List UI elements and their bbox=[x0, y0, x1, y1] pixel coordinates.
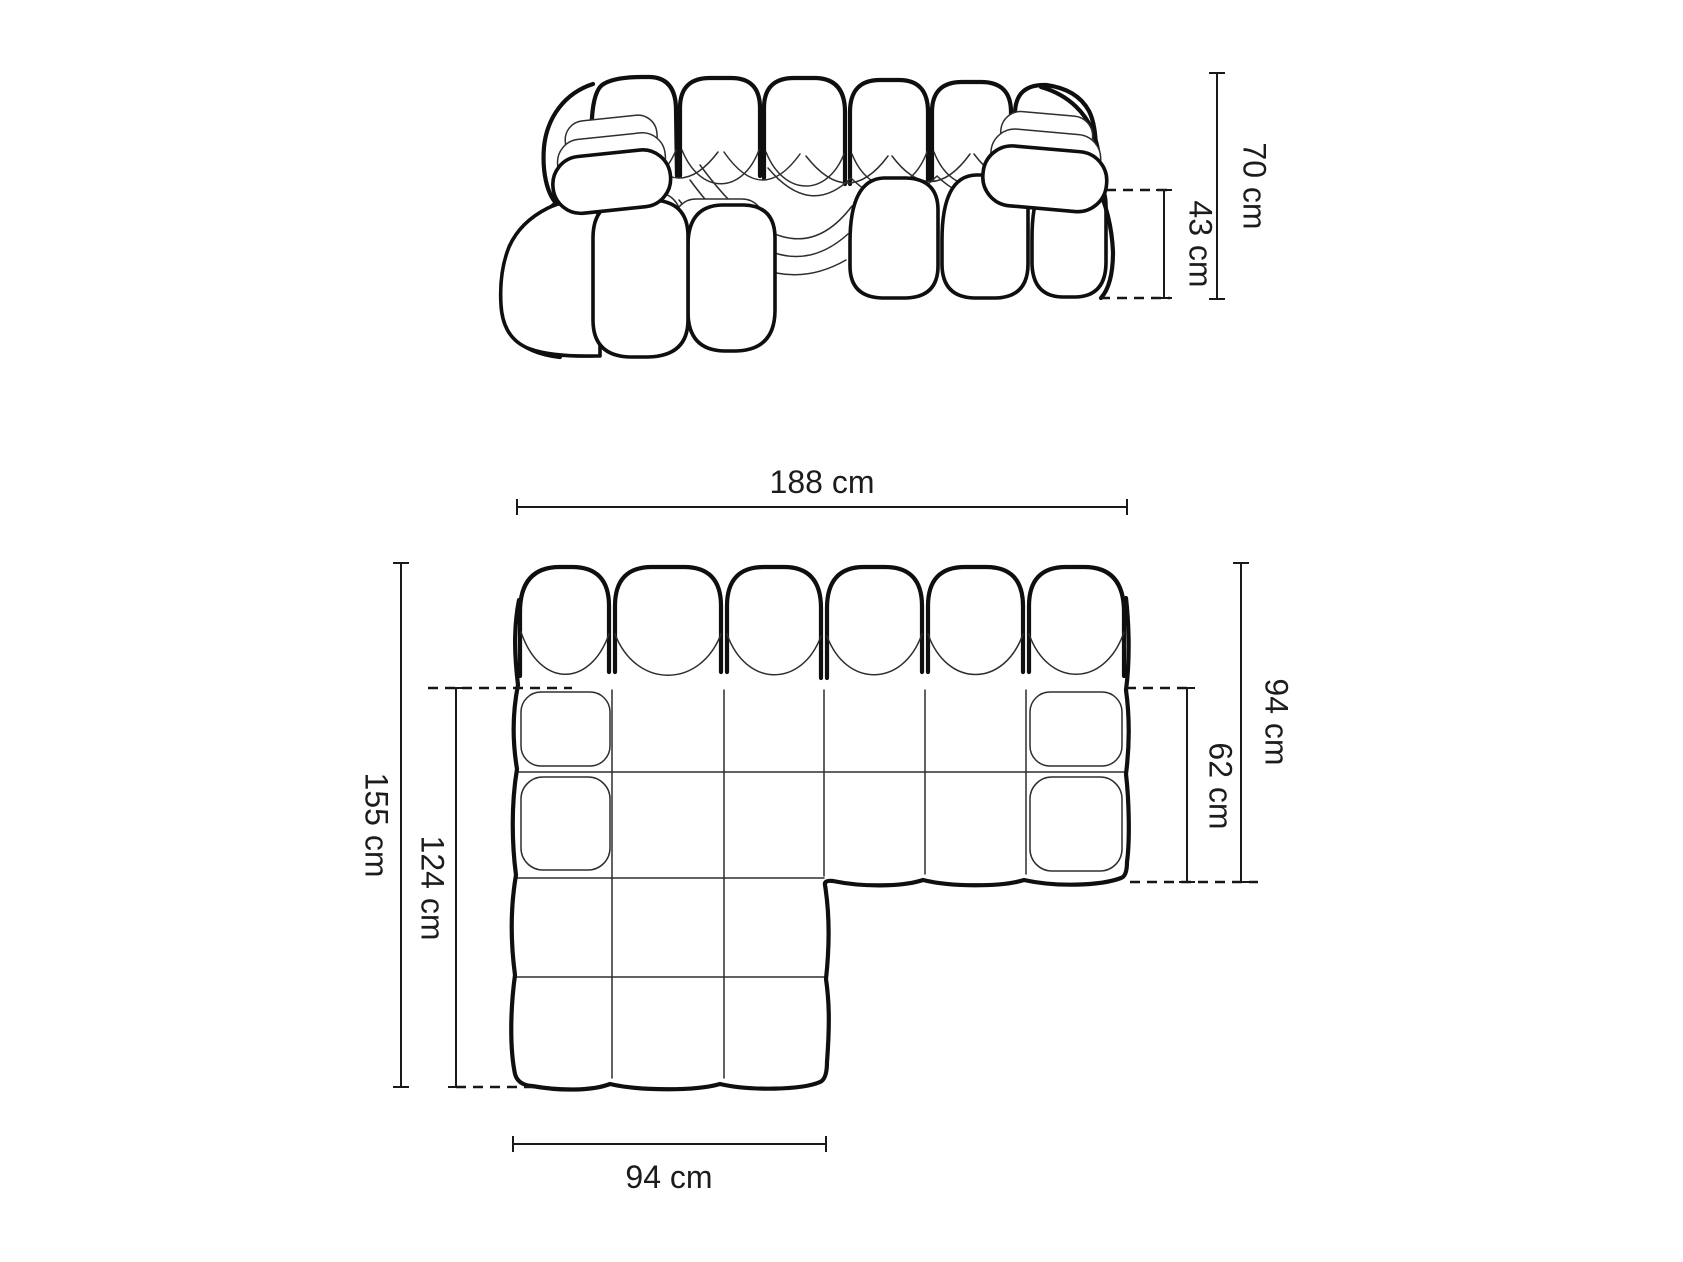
dimension-label-total-height: 70 cm bbox=[1237, 142, 1273, 229]
cushion-bottom-curve bbox=[727, 634, 821, 675]
plan-back-cushion bbox=[727, 567, 821, 678]
dimension-label-total-width: 188 cm bbox=[770, 464, 875, 500]
seat-pad bbox=[521, 692, 610, 766]
left-armrest bbox=[546, 112, 673, 216]
seat-cushion bbox=[850, 178, 938, 298]
dimension-label-chaise-width: 94 cm bbox=[625, 1159, 712, 1195]
front-chaise-cushions bbox=[501, 200, 775, 357]
plan-back-cushion bbox=[827, 567, 922, 678]
dim-chaise-width: 94 cm bbox=[513, 1136, 826, 1195]
sofa-dimension-diagram: 70 cm 43 cm bbox=[0, 0, 1683, 1262]
dimension-label-chaise-depth: 124 cm bbox=[415, 836, 451, 941]
cushion-bottom-curve bbox=[827, 634, 922, 675]
dimension-line bbox=[1156, 190, 1172, 298]
plan-back-cushion bbox=[615, 567, 721, 672]
cushion-bottom-curve bbox=[1029, 632, 1124, 674]
armrest-pill bbox=[980, 143, 1109, 214]
plan-back-cushion bbox=[928, 567, 1023, 672]
cushion-bottom-curve bbox=[521, 632, 609, 674]
top-view: 188 cm 155 cm 124 cm 94 cm 62 cm 94 cm bbox=[359, 464, 1295, 1195]
plan-back-cushion bbox=[520, 567, 609, 676]
armrest-pill bbox=[550, 147, 673, 216]
dimension-label-right-seat-depth: 62 cm bbox=[1203, 742, 1239, 829]
front-view: 70 cm 43 cm bbox=[501, 73, 1273, 357]
chaise-cushion bbox=[501, 200, 600, 356]
dim-seat-height: 43 cm bbox=[1156, 190, 1219, 298]
dim-chaise-depth: 124 cm bbox=[415, 688, 464, 1087]
dim-right-seat-depth: 62 cm bbox=[1179, 688, 1239, 882]
dimension-label-right-depth: 94 cm bbox=[1259, 678, 1295, 765]
chaise-cushion bbox=[688, 205, 775, 351]
back-cushion bbox=[680, 78, 760, 176]
plan-grid bbox=[515, 690, 1125, 1078]
dimension-line bbox=[1233, 563, 1249, 882]
chaise-cushion bbox=[593, 200, 688, 357]
dimension-line bbox=[517, 499, 1127, 515]
diagram-svg: 70 cm 43 cm bbox=[0, 0, 1683, 1262]
seat-pad bbox=[1030, 692, 1122, 766]
dim-right-depth: 94 cm bbox=[1233, 563, 1295, 882]
tuft-curve bbox=[766, 152, 844, 186]
cushion-bottom-curve bbox=[928, 634, 1023, 675]
dimension-line bbox=[1179, 688, 1195, 882]
dim-total-depth: 155 cm bbox=[359, 563, 409, 1087]
plan-extension-lines bbox=[428, 688, 1258, 1087]
back-cushion bbox=[764, 78, 845, 184]
dim-total-width: 188 cm bbox=[517, 464, 1127, 515]
seat-pad bbox=[521, 777, 610, 870]
dimension-label-seat-height: 43 cm bbox=[1183, 200, 1219, 287]
dimension-label-total-depth: 155 cm bbox=[359, 773, 395, 878]
seat-pad bbox=[1030, 777, 1122, 871]
plan-back-cushions bbox=[520, 567, 1124, 678]
back-cushion bbox=[850, 80, 928, 184]
cushion-bottom-curve bbox=[615, 634, 721, 675]
tuft-curve bbox=[682, 150, 759, 184]
plan-seat-pads bbox=[521, 692, 1122, 871]
dimension-line bbox=[513, 1136, 826, 1152]
